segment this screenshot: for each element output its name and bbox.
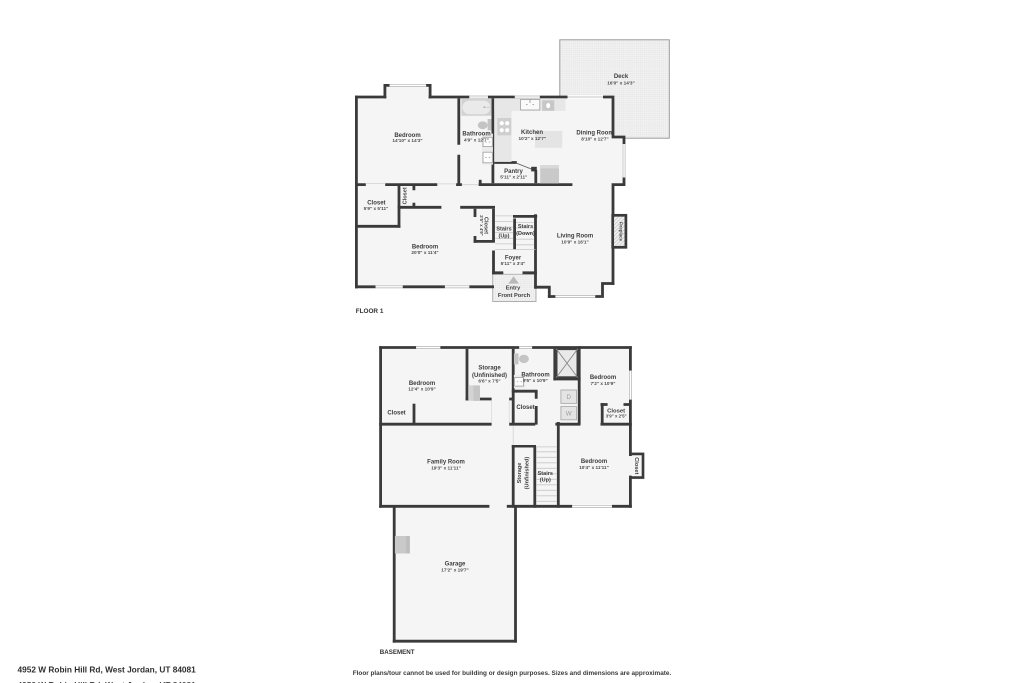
svg-text:Stairs: Stairs — [496, 227, 511, 233]
svg-text:Closet: Closet — [403, 187, 409, 204]
svg-text:9'5" x 10'9": 9'5" x 10'9" — [523, 378, 548, 383]
svg-text:(Unfinished): (Unfinished) — [524, 457, 530, 490]
svg-text:6'6" x 7'5": 6'6" x 7'5" — [478, 378, 500, 383]
svg-text:2'5" x 4'9": 2'5" x 4'9" — [479, 215, 484, 235]
svg-text:4'9" x 12'7": 4'9" x 12'7" — [464, 138, 489, 143]
svg-text:3'9" x 2'5": 3'9" x 2'5" — [606, 414, 627, 419]
svg-text:Closet: Closet — [387, 411, 405, 417]
svg-text:12'4" x 10'9": 12'4" x 10'9" — [408, 387, 436, 392]
svg-text:Fireplace: Fireplace — [618, 222, 623, 242]
svg-text:7'2" x 10'9": 7'2" x 10'9" — [591, 381, 616, 386]
svg-text:D: D — [566, 394, 571, 401]
svg-text:Closet: Closet — [516, 405, 534, 411]
svg-text:Entry: Entry — [506, 286, 521, 292]
svg-text:Stairs: Stairs — [518, 224, 533, 230]
svg-text:17'2" x 19'7": 17'2" x 19'7" — [441, 568, 469, 573]
svg-text:BASEMENT: BASEMENT — [380, 649, 415, 656]
svg-text:FLOOR 1: FLOOR 1 — [356, 308, 384, 315]
svg-text:(Down): (Down) — [516, 231, 535, 237]
svg-text:Floor plans/tour cannot be use: Floor plans/tour cannot be used for buil… — [353, 670, 672, 677]
svg-text:Closet: Closet — [633, 457, 639, 474]
svg-text:5'9" x 5'11": 5'9" x 5'11" — [364, 206, 389, 211]
svg-text:(Up): (Up) — [499, 233, 510, 239]
svg-text:10'2" x 12'7": 10'2" x 12'7" — [519, 136, 547, 141]
svg-text:10'9" x 16'1": 10'9" x 16'1" — [561, 240, 589, 245]
svg-text:Storage: Storage — [517, 463, 523, 484]
svg-text:14'10" x 14'3": 14'10" x 14'3" — [392, 138, 422, 143]
svg-text:5'11" x 2'11": 5'11" x 2'11" — [500, 174, 527, 179]
svg-text:Deck: Deck — [614, 74, 629, 80]
svg-text:Storage: Storage — [478, 366, 501, 372]
svg-text:20'0" x 11'4": 20'0" x 11'4" — [411, 250, 438, 255]
svg-text:10'4" x 11'11": 10'4" x 11'11" — [579, 465, 609, 470]
svg-text:Stairs: Stairs — [538, 471, 553, 477]
svg-text:4952 W Robin Hill Rd, West Jor: 4952 W Robin Hill Rd, West Jordan, UT 84… — [18, 664, 197, 674]
svg-text:8'10" x 12'7": 8'10" x 12'7" — [581, 137, 609, 142]
svg-text:5'11" x 3'4": 5'11" x 3'4" — [501, 261, 526, 266]
svg-text:Front Porch: Front Porch — [498, 293, 531, 299]
svg-text:16'0" x 14'3": 16'0" x 14'3" — [607, 80, 635, 85]
svg-text:W: W — [566, 410, 572, 417]
svg-text:19'3" x 11'11": 19'3" x 11'11" — [431, 465, 461, 470]
svg-text:(Up): (Up) — [540, 477, 551, 483]
